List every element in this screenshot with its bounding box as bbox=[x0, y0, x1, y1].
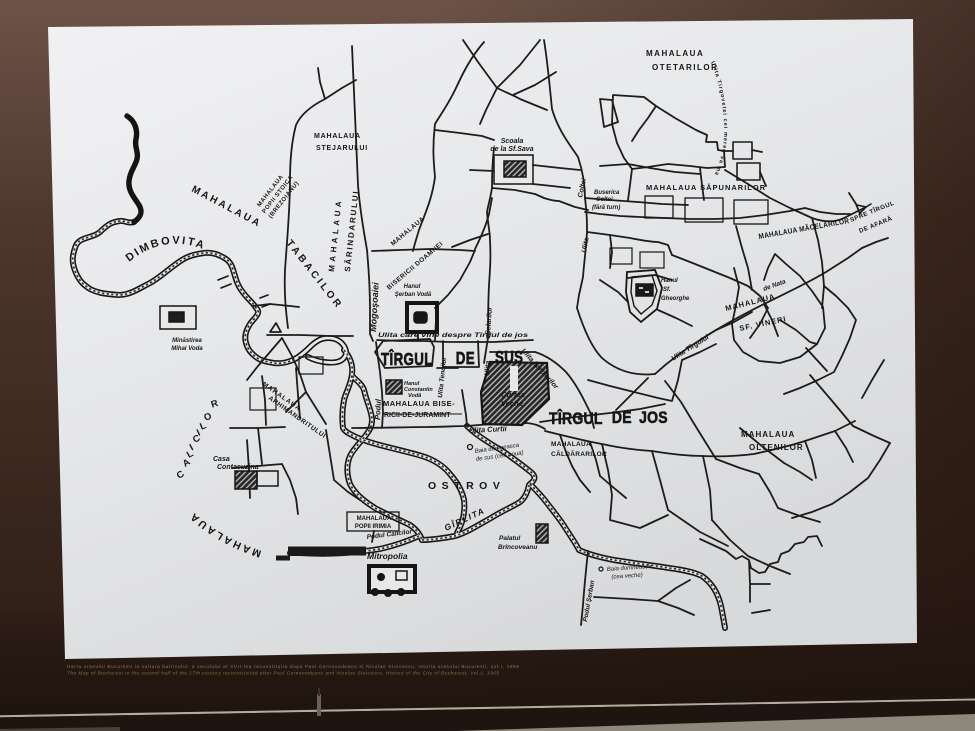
svg-text:Mitropolia: Mitropolia bbox=[367, 551, 408, 561]
svg-text:MAHALAUA SĂPUNARILOR: MAHALAUA SĂPUNARILOR bbox=[646, 183, 766, 192]
svg-text:Podul: Podul bbox=[373, 398, 383, 420]
svg-text:CurteaVeche: CurteaVeche bbox=[501, 390, 525, 408]
svg-text:MAHALAUA BISE-: MAHALAUA BISE- bbox=[383, 399, 455, 408]
svg-text:Ulita: Ulita bbox=[484, 360, 492, 376]
svg-text:Ulita care vine despre Tîrgul: Ulita care vine despre Tîrgul de jos bbox=[378, 332, 529, 339]
svg-text:RICII-DE-JURAMINT: RICII-DE-JURAMINT bbox=[384, 412, 451, 419]
svg-text:OSTROV: OSTROV bbox=[428, 480, 505, 492]
svg-text:The Map of Bucharest in the se: The Map of Bucharest in the second half … bbox=[67, 671, 499, 676]
svg-text:Harta orasului Bucuresti in cu: Harta orasului Bucuresti in cultura batr… bbox=[67, 664, 519, 669]
